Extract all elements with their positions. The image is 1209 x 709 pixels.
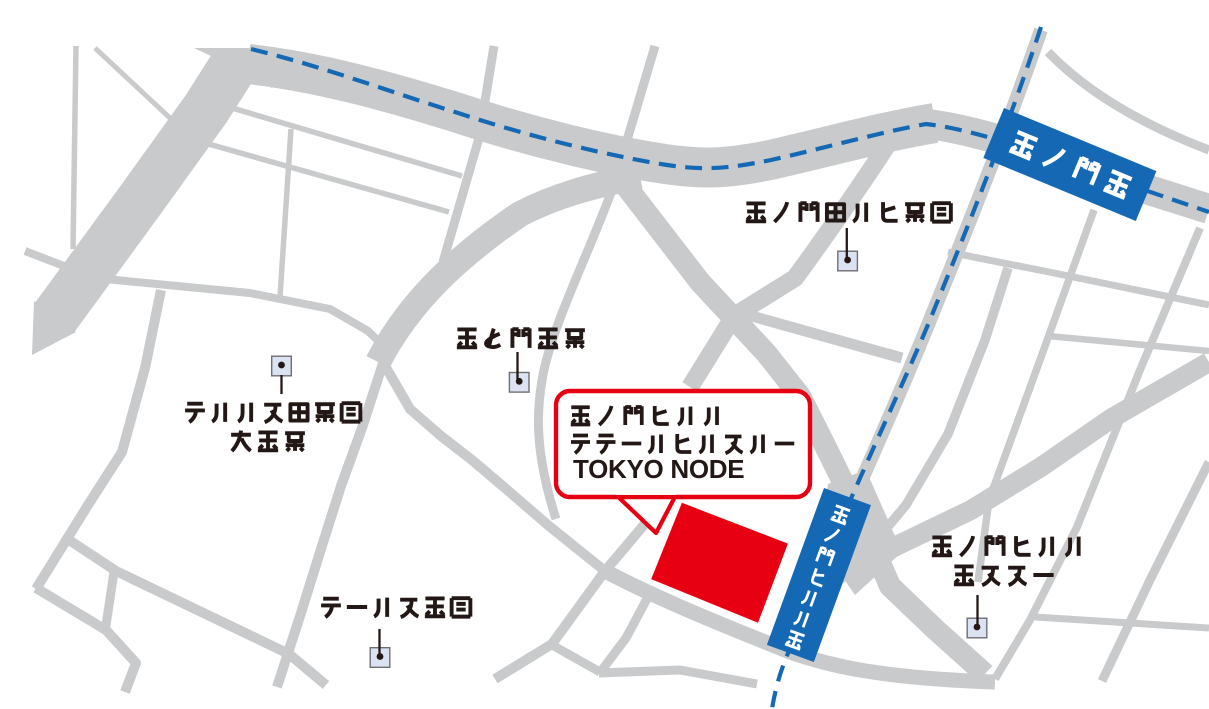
svg-text:TOKYO NODE: TOKYO NODE [573, 454, 744, 484]
